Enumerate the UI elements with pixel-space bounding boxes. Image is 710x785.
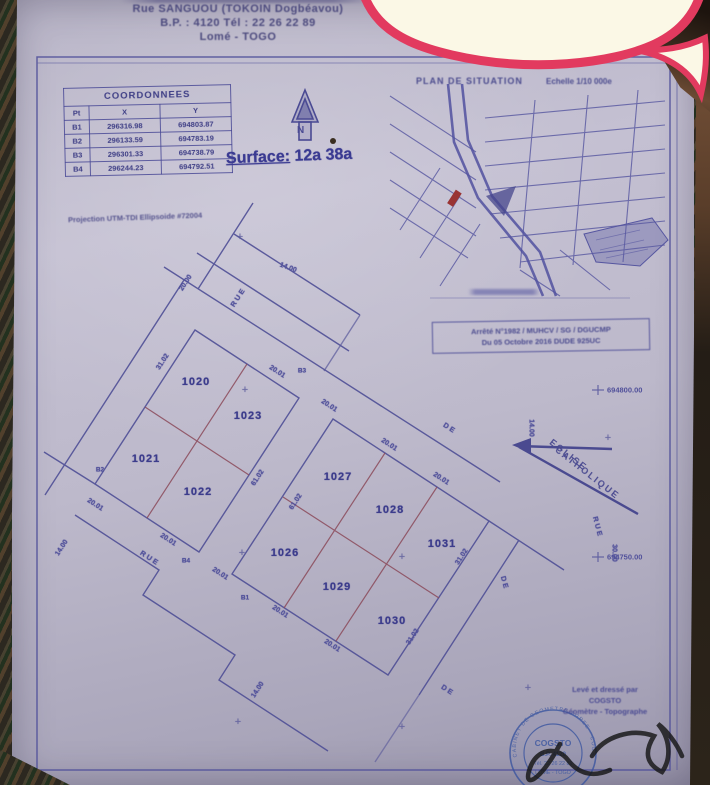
map-hatched-block [584, 218, 668, 266]
speech-bubble-overlay [0, 0, 710, 135]
church-arrow [512, 438, 638, 514]
document-frame [37, 57, 670, 770]
photo-speck [330, 138, 336, 144]
lot-subdivision-lines [145, 364, 439, 641]
photo-scene: CABINET DE GEOMETRE AGREE · COGSTO · COG… [0, 0, 710, 785]
parcel-block-lines [44, 203, 564, 762]
map-red-parcel-marker [447, 190, 462, 207]
stamp-name: COGSTO [535, 738, 572, 748]
